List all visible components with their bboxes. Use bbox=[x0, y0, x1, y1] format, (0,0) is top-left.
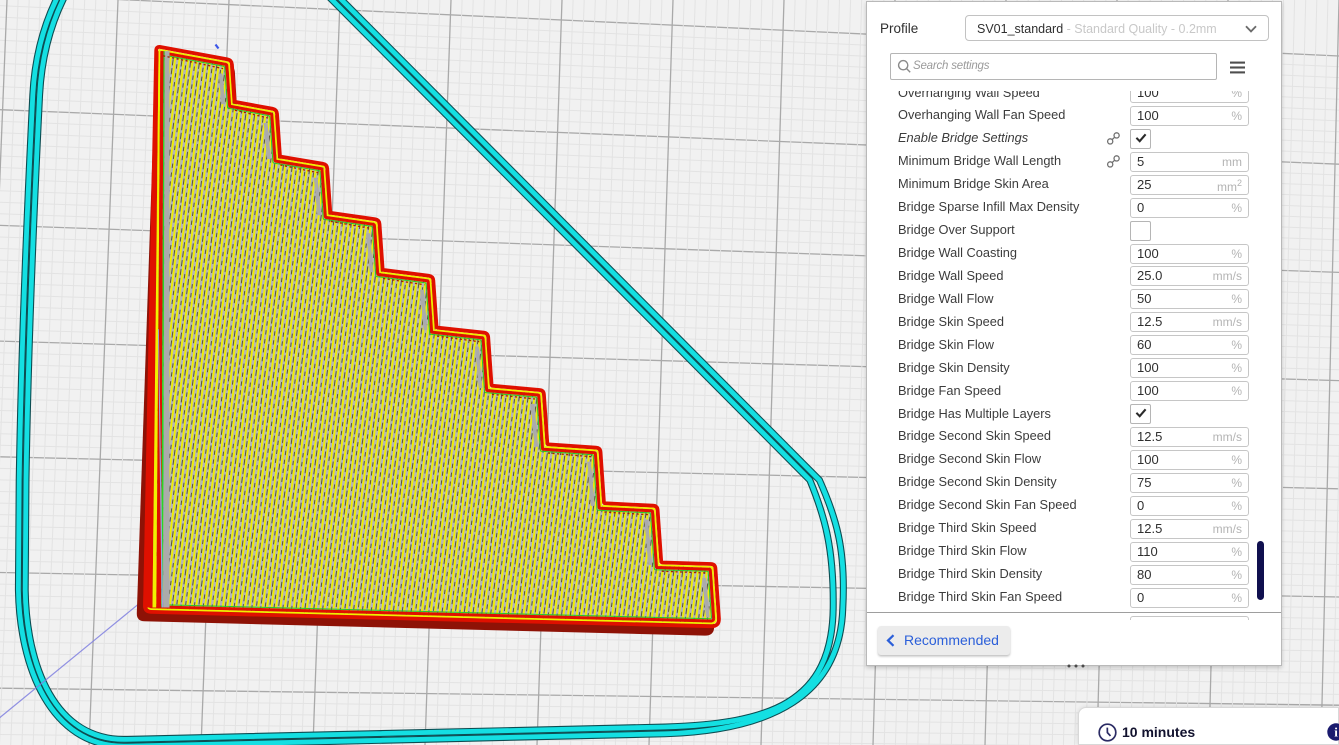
svg-text:i: i bbox=[1334, 724, 1338, 739]
